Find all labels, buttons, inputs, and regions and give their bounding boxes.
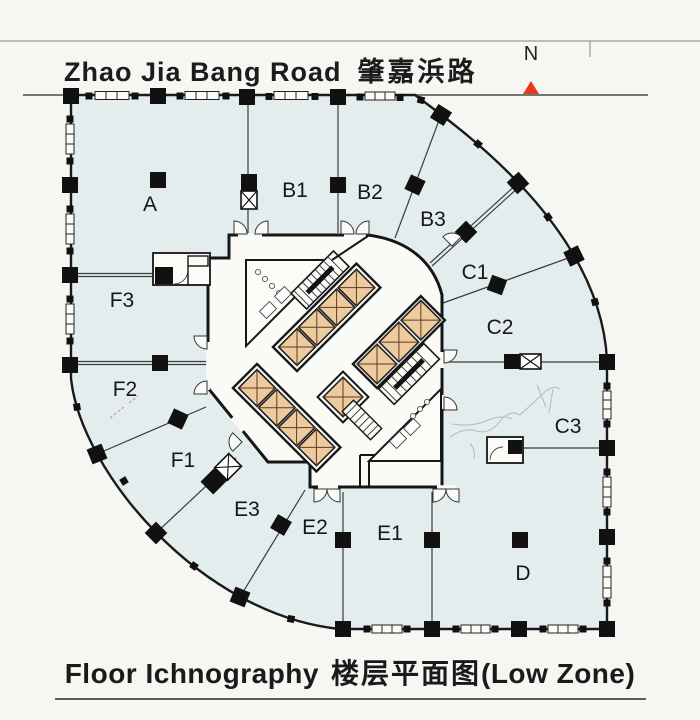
zone-label-f1: F1 bbox=[171, 449, 196, 472]
zone-label-c2: C2 bbox=[487, 316, 514, 339]
elevator-shaft-icon-east bbox=[504, 354, 541, 369]
caption-zh: 楼层平面图 bbox=[331, 658, 481, 689]
zone-label-f3: F3 bbox=[110, 289, 135, 312]
zone-label-f2: F2 bbox=[113, 378, 138, 401]
zone-label-e3: E3 bbox=[234, 498, 260, 521]
zone-label-c1: C1 bbox=[462, 261, 489, 284]
zone-label-b1: B1 bbox=[282, 179, 308, 202]
floor-plan-page: Zhao Jia Bang Road肇嘉浜路 N bbox=[0, 0, 700, 720]
zone-label-b3: B3 bbox=[420, 208, 446, 231]
zone-label-c3: C3 bbox=[555, 415, 582, 438]
zone-label-d: D bbox=[515, 562, 530, 585]
zone-label-e1: E1 bbox=[377, 522, 403, 545]
floor-plan-svg: A B1 B2 B3 C1 C2 C3 D E1 E2 E3 F1 F2 F3 bbox=[0, 0, 700, 720]
caption: Floor Ichnography楼层平面图(Low Zone) bbox=[0, 652, 700, 692]
page-frame-lines bbox=[0, 41, 700, 57]
zone-label-b2: B2 bbox=[357, 181, 383, 204]
caption-en: Floor Ichnography bbox=[65, 658, 319, 689]
service-room-west bbox=[153, 253, 210, 285]
zone-label-e2: E2 bbox=[302, 516, 328, 539]
caption-zone-note: (Low Zone) bbox=[481, 658, 635, 689]
zone-label-a: A bbox=[143, 193, 157, 216]
elevator-shaft-icon-north bbox=[241, 174, 257, 209]
service-room-east bbox=[487, 437, 523, 463]
